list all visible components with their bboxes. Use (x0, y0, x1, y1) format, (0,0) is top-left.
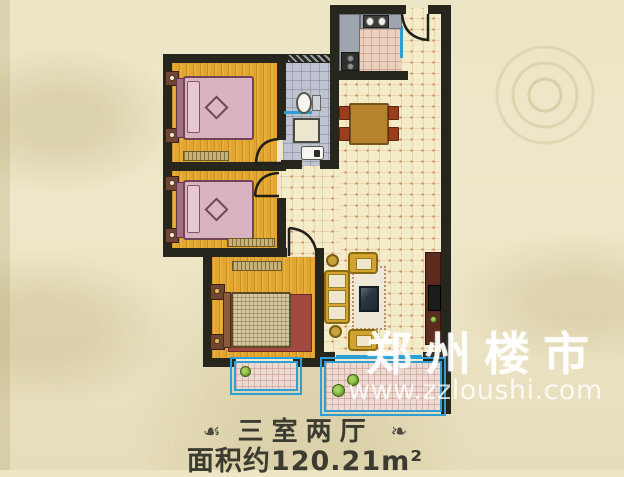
floor-plan-page: { "type": "real-estate-floor-plan", "cap… (0, 0, 624, 470)
dining-chair-icon (339, 127, 350, 141)
kitchen-sliding-door (400, 26, 403, 58)
wall-living-bottom-left (315, 352, 335, 361)
plant-icon (332, 384, 345, 397)
dresser-icon (227, 238, 275, 247)
wall-master-bottom-left (203, 358, 236, 367)
wall-master-right (315, 248, 324, 367)
master-bed-icon (231, 292, 291, 348)
dining-chair-icon (388, 106, 399, 120)
watermark-url: www.zzloushi.com (348, 377, 603, 404)
stove-icon (341, 52, 359, 71)
wall-right (441, 5, 451, 361)
side-table-icon (326, 254, 339, 267)
armchair-icon (348, 252, 378, 274)
wall-vent-hatch (288, 55, 330, 62)
dining-chair-icon (339, 106, 350, 120)
wall-bedroom1-2-divider (163, 162, 286, 171)
dresser-icon (232, 261, 282, 271)
dining-chair-icon (388, 127, 399, 141)
dresser-icon (183, 151, 229, 161)
wall-bathroom-bottom-left (281, 160, 302, 169)
plant-icon (240, 366, 251, 377)
watermark-brand: 郑州楼市 (366, 331, 602, 377)
ornament-right-icon: ❧ (391, 419, 408, 443)
toilet-tank-icon (312, 95, 321, 111)
layout-title: 三室两厅 (238, 417, 374, 447)
wall-bathroom-bottom-right (320, 160, 333, 169)
caption-title-row: ☙ 三室两厅 ❧ (140, 419, 470, 445)
ornament-left-icon: ☙ (203, 419, 221, 443)
dining-table-icon (349, 103, 389, 145)
area-text: 面积约120.21m² (140, 448, 470, 475)
bathroom-sink-icon (301, 146, 324, 160)
bed-icon (176, 76, 254, 140)
coffee-table-icon (359, 286, 379, 312)
wall-kitchen-bottom (330, 71, 408, 80)
wall-master-top (203, 248, 287, 257)
wall-kitchen-top (330, 5, 406, 14)
toilet-icon (296, 92, 312, 114)
kitchen-sink-icon (363, 15, 389, 28)
sofa-icon (324, 270, 350, 324)
wall-bedroom1-right (277, 54, 286, 140)
background-texture-strip (0, 0, 10, 470)
shower-tray-icon (293, 118, 320, 143)
headboard-icon (223, 292, 231, 348)
wall-kitchen-bath-left (330, 5, 339, 169)
caption: ☙ 三室两厅 ❧ 面积约120.21m² (140, 419, 470, 445)
side-table-icon (329, 325, 342, 338)
bed-icon (176, 180, 254, 240)
